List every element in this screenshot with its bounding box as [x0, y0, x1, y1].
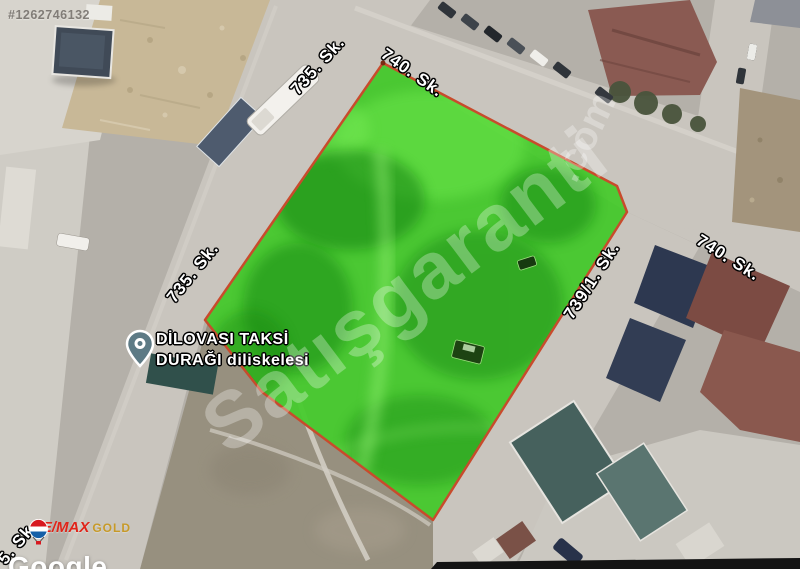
map-attribution-logo: Google	[8, 551, 107, 569]
agency-logo: RE/MAX GOLD	[28, 519, 131, 536]
listing-map-screenshot: #1262746132 735. Sk. 740. Sk. 735. Sk. 7…	[0, 0, 800, 569]
listing-id-watermark: #1262746132	[8, 8, 90, 22]
agency-suffix: GOLD	[92, 521, 131, 535]
remax-balloon-icon	[28, 519, 49, 545]
